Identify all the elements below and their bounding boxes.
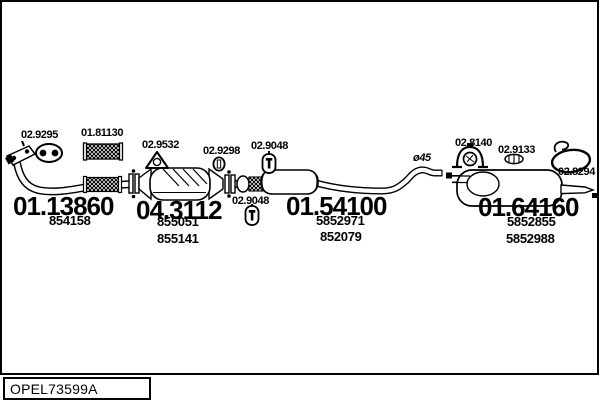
rubber-hanger-icon (263, 151, 276, 173)
part-ref: 5852971 (316, 213, 365, 228)
pipe-clamp-ring (237, 176, 249, 192)
fitting-label-gasket-oval: 02.9295 (21, 129, 58, 141)
fitting-label-mount-bracket: 02.8140 (455, 137, 492, 149)
joint-marker-square (592, 193, 598, 198)
part-ref: 855051 (157, 214, 199, 229)
pipe-diameter-label: ø45 (413, 152, 431, 164)
flex-pipe-icon (84, 143, 123, 160)
part-ref: 5852988 (506, 231, 555, 246)
fitting-label-gasket-triangle: 02.9532 (142, 139, 179, 151)
drawing-code: OPEL73599A (5, 381, 98, 397)
fitting-label-hanger-mid: 02.9048 (232, 195, 269, 207)
fitting-label-clamp-ring: 02.9298 (203, 145, 240, 157)
clamp-ring-icon (213, 157, 224, 170)
part-ref: 854158 (49, 213, 91, 228)
part-ref: 5852855 (507, 214, 556, 229)
fitting-label-hanger-front: 02.9048 (251, 140, 288, 152)
fitting-label-flex-pipe: 01.81130 (81, 127, 123, 139)
fitting-label-hanger-ring: 02.8294 (558, 166, 595, 178)
part-ref: 855141 (157, 231, 199, 246)
catalyst-outlet-flange (225, 170, 235, 198)
triangle-gasket-icon (146, 152, 168, 168)
front-flange (5, 141, 35, 165)
exhaust-parts-diagram: 02.9295 01.81130 02.9532 02.9298 02.9048… (0, 0, 600, 400)
rubber-hanger-icon (246, 204, 259, 225)
joint-marker-square (446, 173, 452, 179)
rear-s-pipe-tube (316, 170, 442, 191)
catalyst-inlet-flange (129, 169, 139, 198)
part-ref: 852079 (320, 229, 362, 244)
oval-gasket-icon (36, 144, 62, 162)
drawing-code-box: OPEL73599A (3, 377, 151, 400)
fitting-label-clamp-band: 02.9133 (498, 144, 535, 156)
